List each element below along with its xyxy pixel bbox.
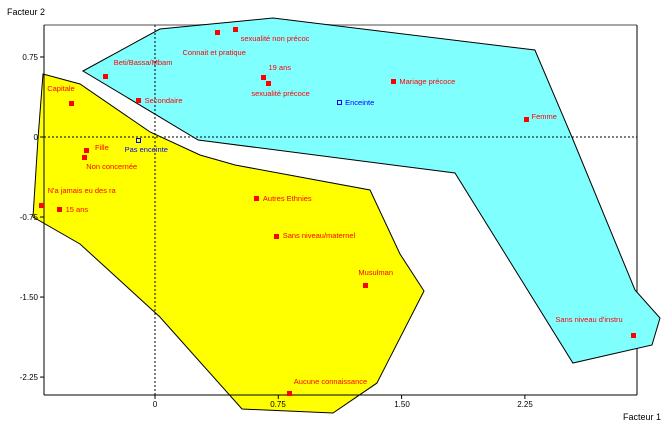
point-marker-mariage-pr-coce	[391, 79, 396, 84]
point-label-19-ans: 19 ans	[269, 64, 292, 72]
point-label-autres-ethnies: Autres Ethnies	[263, 195, 312, 203]
point-marker-19-ans	[261, 75, 266, 80]
point-label-15-ans: 15 ans	[66, 206, 89, 214]
y-tick-label-0: 0	[6, 133, 38, 142]
point-label-sexualit-pr-coce: sexualité précoce	[251, 90, 309, 98]
plot-canvas	[0, 0, 664, 428]
point-marker-pas-enceinte	[136, 138, 141, 143]
point-label-enceinte: Enceinte	[345, 99, 374, 107]
point-marker-beti-bassa-mbam	[103, 74, 108, 79]
point-label-n-a-jamais-eu-des-ra: N'a jamais eu des ra	[48, 187, 116, 195]
point-marker-sexualit-non-pr-coc	[233, 27, 238, 32]
point-marker-n-a-jamais-eu-des-ra	[39, 203, 44, 208]
point-marker-femme	[524, 117, 529, 122]
point-label-aucune-connaissance: Aucune connaissance	[294, 378, 367, 386]
point-label-sexualit-non-pr-coc: sexualité non précoc	[241, 35, 310, 43]
point-label-mariage-pr-coce: Mariage précoce	[399, 78, 455, 86]
point-marker-aucune-connaissance	[287, 391, 292, 396]
point-marker-connait-et-pratique	[215, 30, 220, 35]
x-axis-title: Facteur 1	[623, 412, 661, 422]
y-axis-title: Facteur 2	[7, 7, 45, 17]
point-marker-musulman	[363, 283, 368, 288]
point-label-musulman: Musulman	[358, 269, 393, 277]
point-label-non-concern-e: Non concernée	[86, 163, 137, 171]
point-marker-15-ans	[57, 207, 62, 212]
y-tick-label-0-75: -0.75	[6, 213, 38, 222]
point-label-pas-enceinte: Pas enceinte	[125, 146, 168, 154]
point-label-capitale: Capitale	[47, 85, 75, 93]
y-tick-label-0-75: 0.75	[6, 53, 38, 62]
point-marker-non-concern-e	[82, 155, 87, 160]
x-tick-label-0: 0	[142, 400, 168, 409]
x-tick-label-1-50: 1.50	[389, 400, 415, 409]
y-tick-label-1-50: -1.50	[6, 293, 38, 302]
point-marker-autres-ethnies	[254, 196, 259, 201]
point-label-secondaire: Secondaire	[145, 97, 183, 105]
factor-map-chart: Facteur 2 Facteur 1 00.751.502.250.750-0…	[0, 0, 664, 428]
y-tick-label-2-25: -2.25	[6, 373, 38, 382]
point-marker-sexualit-pr-coce	[266, 81, 271, 86]
point-marker-sans-niveau-maternel	[274, 234, 279, 239]
point-marker-capitale	[69, 101, 74, 106]
point-marker-enceinte	[337, 100, 342, 105]
point-marker-secondaire	[136, 98, 141, 103]
point-label-connait-et-pratique: Connait et pratique	[183, 49, 246, 57]
point-label-sans-niveau-maternel: Sans niveau/maternel	[283, 232, 356, 240]
x-tick-label-0-75: 0.75	[265, 400, 291, 409]
x-tick-label-2-25: 2.25	[512, 400, 538, 409]
point-marker-fille	[84, 148, 89, 153]
point-label-fille: Fille	[95, 144, 109, 152]
point-label-femme: Femme	[532, 113, 557, 121]
point-label-beti-bassa-mbam: Beti/Bassa/Mbam	[114, 59, 173, 67]
point-label-sans-niveau-d-instru: Sans niveau d'instru	[555, 316, 622, 324]
point-marker-sans-niveau-d-instru	[631, 333, 636, 338]
